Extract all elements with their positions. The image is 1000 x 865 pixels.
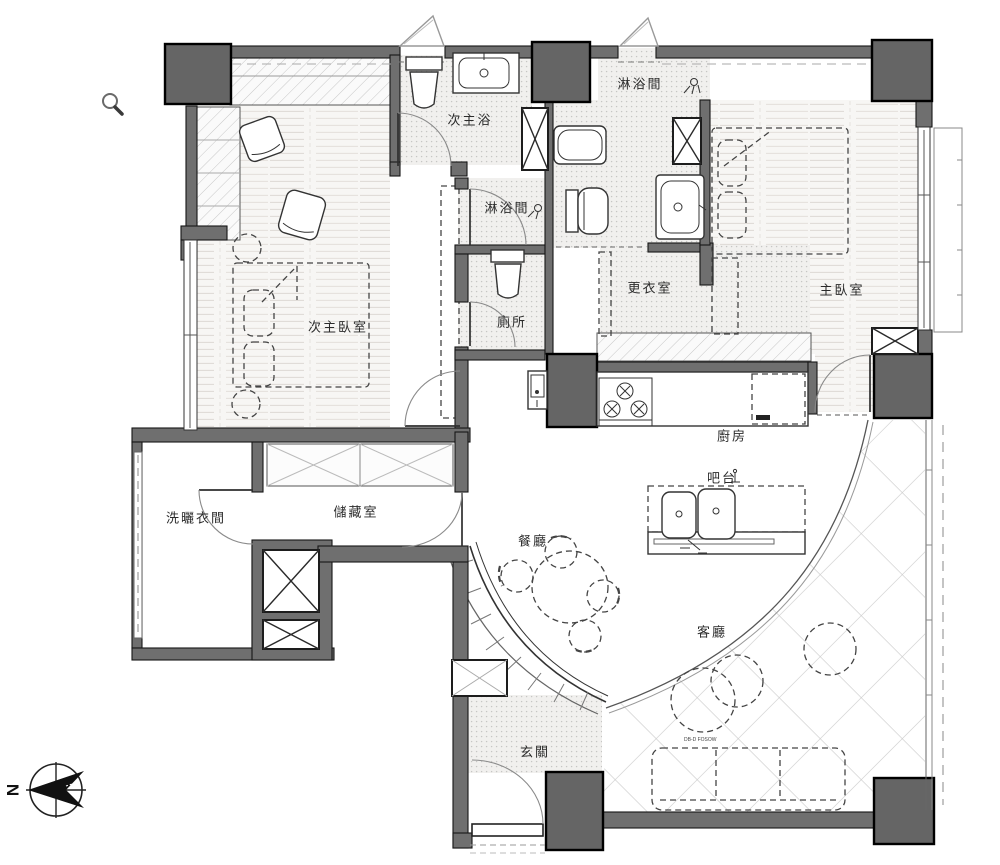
door-secondary-bedroom [405,371,460,426]
column-top-right [872,40,932,101]
shaft-bath-left [522,108,548,170]
railing-right [926,420,943,810]
toilet-master [566,188,608,234]
door-entry [470,760,545,853]
vanity-secondary-bath [453,53,519,93]
utility-sink [528,371,547,409]
room-label-laundry: 洗曬衣間 [166,512,226,525]
window-secondary-bedroom [184,240,197,430]
room-label-shower-secondary: 淋浴間 [484,202,529,215]
magnifier-cursor-icon [103,94,122,114]
room-label-walk-in-closet: 更衣室 [627,282,672,295]
entry-bench-cabinet [452,660,507,696]
room-label-kitchen: 廚房 [717,430,747,443]
window-laundry [134,452,142,638]
column-right-middle [874,354,932,418]
room-label-secondary-bedroom: 次主臥室 [308,321,368,334]
column-kitchen [547,354,597,427]
column-entry [546,772,603,850]
shaft-master-bath [673,118,701,164]
room-label-master-bedroom: 主臥室 [819,284,864,297]
shaft-core-small [263,620,319,649]
shaft-right [872,328,918,354]
room-label-shower-master: 淋浴間 [617,78,662,91]
room-label-secondary-master-bath: 次主浴 [447,114,492,127]
room-label-entry: 玄關 [520,746,550,759]
floor-living-tiles [603,420,925,812]
sofa-model-annotation: DB-D FOSOW [684,738,717,743]
wardrobe-top-secondary-bedroom [230,58,393,105]
wardrobe-band-closet [597,333,811,361]
kitchen-counter [597,372,808,426]
room-label-bar: 吧台 [707,472,737,485]
room-label-dining: 餐廳 [518,535,548,548]
door-storage [402,492,462,547]
room-label-toilet: 廁所 [497,316,527,329]
column-top-middle [532,42,590,102]
room-label-storage: 儲藏室 [333,506,378,519]
vanity-master-bath [656,175,706,239]
room-label-living: 客廳 [697,626,727,639]
floor-plan-canvas[interactable]: N 次主浴 淋浴間 淋浴間 次主臥室 廁所 更衣室 主臥室 廚房 吧台 洗曬衣間… [0,0,1000,865]
north-compass: N [3,762,86,818]
floor-plan-drawing: N [0,0,1000,865]
column-bottom-right [874,778,934,844]
window-master-bedroom [918,127,930,330]
balcony-ledge [934,128,962,332]
bathtub-master [554,126,606,164]
shaft-core-large [263,550,319,612]
column-top-left [165,44,231,104]
north-label: N [3,784,22,796]
